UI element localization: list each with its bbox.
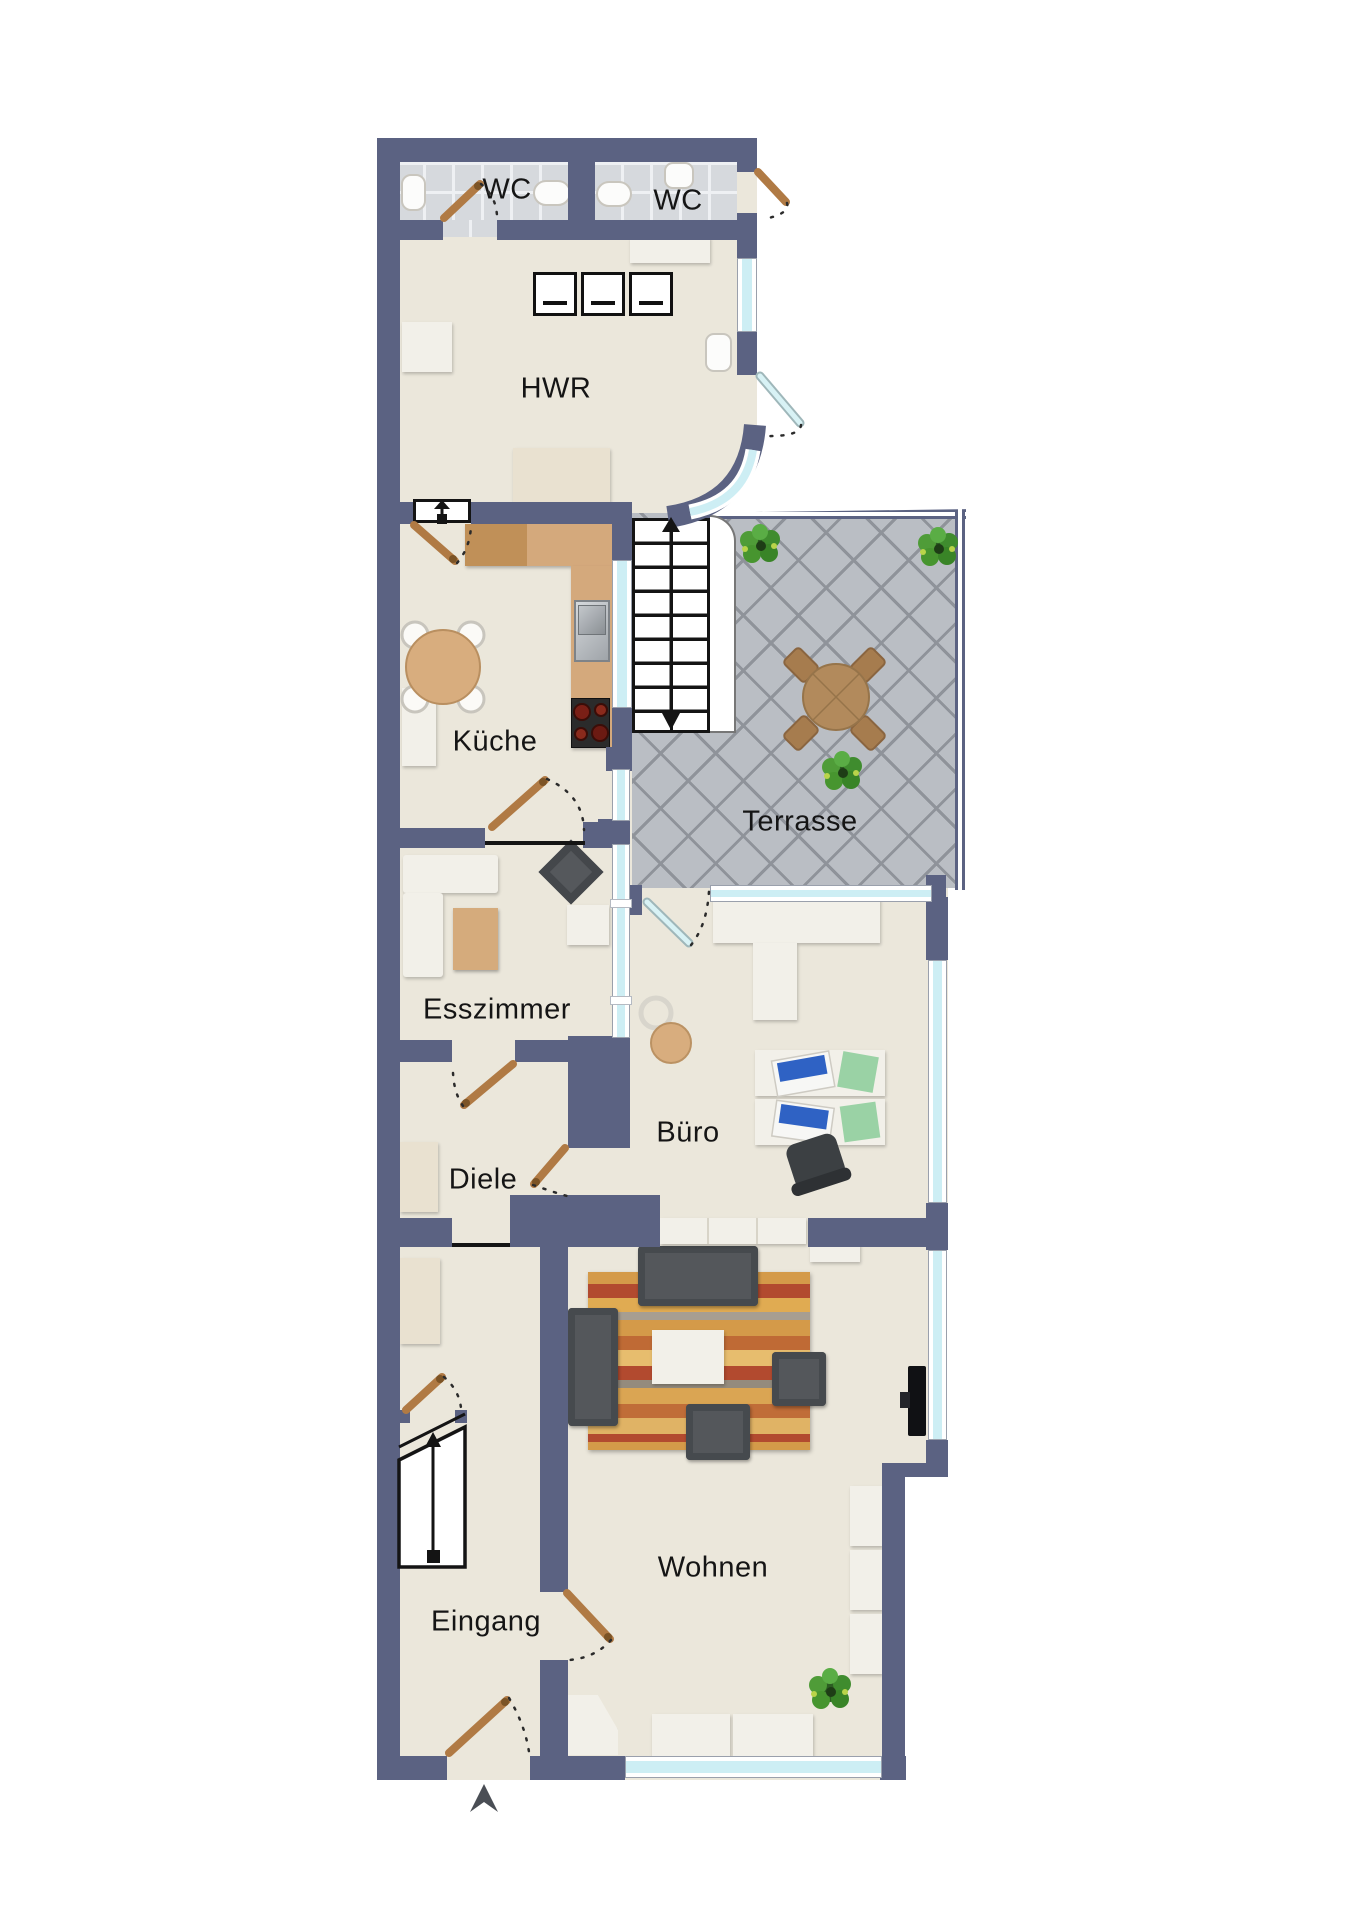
plant-icon [809,1668,851,1709]
plant-icon [918,527,958,566]
door-leaf [406,1377,442,1410]
door-handle [436,1375,444,1383]
door-swing-arc [764,203,787,219]
terrace-dining-set [783,647,887,752]
door-handle [449,555,457,563]
plan-overlay [0,0,1357,1920]
door-leaf [534,1148,565,1184]
kitchen-dining-set [402,622,484,712]
door-swing-arc [457,526,471,563]
paper-icon [840,1102,881,1143]
glass-door-glass [647,902,689,943]
kitchen-round-table [406,630,480,704]
laptop-icon [771,1051,834,1097]
door-leaf [567,1593,610,1639]
door-handle [501,1698,509,1706]
door-swing-arc [691,891,709,945]
stair-arrow-down-icon [662,713,680,730]
door-leaf [464,1064,513,1105]
door-leaf [444,184,480,218]
door-swing-arc [569,1640,611,1660]
door-swing-arc [533,1185,567,1196]
plant-icon [740,524,780,563]
door-swing-arc [509,1698,529,1752]
door-swing-arc [547,779,584,830]
entry-steps-arrow-base [427,1550,440,1563]
stove-burners [574,704,608,741]
office-chair [778,1130,853,1198]
entrance-arrow-icon [470,1784,498,1812]
door-leaf [414,525,455,561]
door-swing-arc [444,1377,461,1408]
glass-door-glass [760,376,800,423]
floor-plan: WC WC HWR Küche Terrasse Esszimmer Büro … [0,0,1357,1920]
plant-icon [822,751,862,790]
door-leaf [758,172,786,202]
door-swing-arc [453,1064,463,1106]
door-leaf [449,1700,507,1753]
door-leaf [492,780,545,827]
door-swing-arc [481,184,497,216]
paper-icon [837,1051,879,1093]
buero-bistro-set [641,998,691,1063]
vent-arrow-head [434,500,450,509]
